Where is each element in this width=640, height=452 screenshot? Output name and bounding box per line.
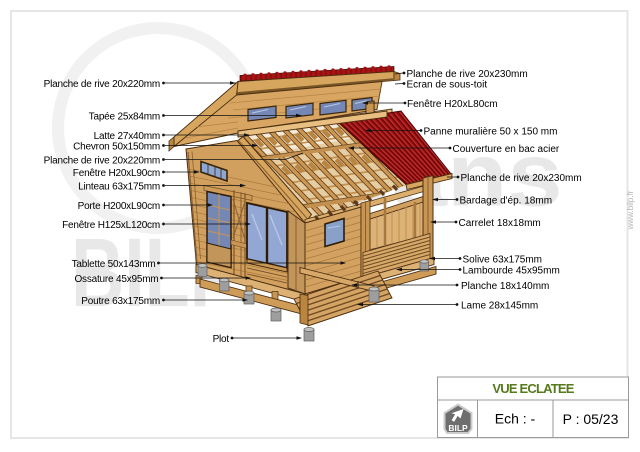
svg-text:Lame 28x145mm: Lame 28x145mm bbox=[461, 301, 538, 312]
svg-text:P : 05/23: P : 05/23 bbox=[563, 411, 619, 427]
svg-text:Latte 27x40mm: Latte 27x40mm bbox=[94, 131, 160, 142]
svg-text:Fenêtre H20xL90cm: Fenêtre H20xL90cm bbox=[73, 168, 160, 179]
svg-text:Ech : -: Ech : - bbox=[495, 411, 536, 427]
svg-text:Linteau 63x175mm: Linteau 63x175mm bbox=[78, 182, 160, 193]
svg-text:Porte H200xL90cm: Porte H200xL90cm bbox=[78, 201, 160, 212]
svg-text:Chevron 50x150mm: Chevron 50x150mm bbox=[73, 142, 160, 153]
svg-text:Planche de rive 20x220mm: Planche de rive 20x220mm bbox=[44, 79, 160, 90]
svg-text:Planche de rive 20x230mm: Planche de rive 20x230mm bbox=[461, 173, 582, 184]
svg-text:Plot: Plot bbox=[213, 334, 230, 345]
svg-text:Bardage d'ép. 18mm: Bardage d'ép. 18mm bbox=[460, 196, 553, 207]
svg-text:Lambourde 45x95mm: Lambourde 45x95mm bbox=[463, 266, 560, 277]
svg-text:BILP: BILP bbox=[448, 423, 468, 433]
svg-text:Ecran de sous-toit: Ecran de sous-toit bbox=[407, 80, 488, 91]
svg-text:Poutre 63x175mm: Poutre 63x175mm bbox=[81, 296, 160, 307]
svg-text:Solive 63x175mm: Solive 63x175mm bbox=[463, 255, 542, 266]
svg-text:Planche 18x140mm: Planche 18x140mm bbox=[461, 281, 549, 292]
svg-text:Panne muralière 50 x 150 mm: Panne muralière 50 x 150 mm bbox=[424, 127, 558, 138]
svg-text:Fenêtre H125xL120cm: Fenêtre H125xL120cm bbox=[62, 220, 160, 231]
svg-text:Couverture en bac acier: Couverture en bac acier bbox=[453, 144, 560, 155]
svg-text:Tablette 50x143mm: Tablette 50x143mm bbox=[72, 259, 156, 270]
svg-text:www.bilp.fr: www.bilp.fr bbox=[626, 190, 635, 230]
svg-text:VUE ECLATEE: VUE ECLATEE bbox=[492, 381, 574, 396]
svg-text:Tapée 25x84mm: Tapée 25x84mm bbox=[89, 112, 160, 123]
svg-text:Planche de rive 20x230mm: Planche de rive 20x230mm bbox=[407, 69, 528, 80]
svg-text:Fenêtre H20xL80cm: Fenêtre H20xL80cm bbox=[407, 99, 498, 110]
svg-text:Ossature 45x95mm: Ossature 45x95mm bbox=[74, 274, 158, 285]
svg-text:Carrelet 18x18mm: Carrelet 18x18mm bbox=[459, 218, 541, 229]
svg-text:Planche de rive 20x220mm: Planche de rive 20x220mm bbox=[44, 156, 160, 167]
